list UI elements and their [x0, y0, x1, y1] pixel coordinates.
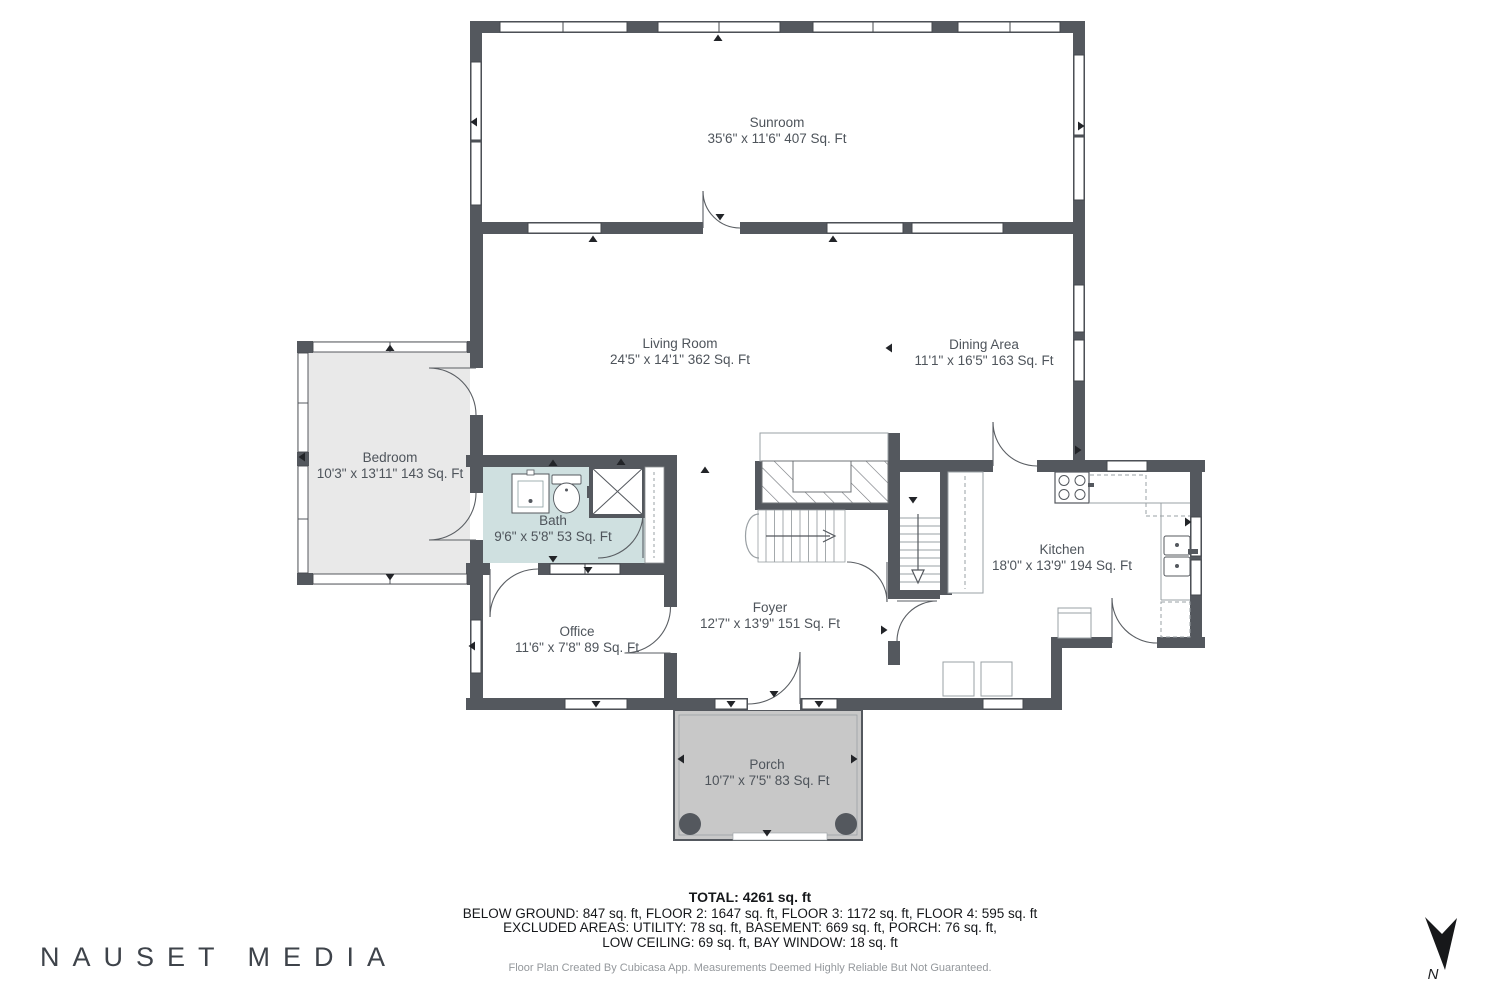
- room-name: Foyer: [700, 600, 840, 616]
- floor-areas: BELOW GROUND: 847 sq. ft, FLOOR 2: 1647 …: [0, 907, 1500, 922]
- room-dims: 9'6" x 5'8" 53 Sq. Ft: [494, 529, 612, 545]
- door-kitchen-south: [1112, 598, 1157, 643]
- room-label-office: Office 11'6" x 7'8" 89 Sq. Ft: [515, 624, 639, 656]
- door-mudroom: [897, 601, 937, 641]
- room-label-sunroom: Sunroom 35'6" x 11'6" 407 Sq. Ft: [707, 115, 846, 147]
- room-label-kitchen: Kitchen 18'0" x 13'9" 194 Sq. Ft: [992, 542, 1132, 574]
- porch-post: [835, 813, 857, 835]
- room-label-porch: Porch 10'7" x 7'5" 83 Sq. Ft: [704, 757, 829, 789]
- room-dims: 12'7" x 13'9" 151 Sq. Ft: [700, 616, 840, 632]
- room-name: Office: [515, 624, 639, 640]
- floor-plan-page: Sunroom 35'6" x 11'6" 407 Sq. Ft Living …: [0, 0, 1500, 1000]
- room-dims: 24'5" x 14'1" 362 Sq. Ft: [610, 352, 750, 368]
- north-label: N: [1418, 966, 1448, 983]
- brand-logo: NAUSET MEDIA: [40, 942, 398, 973]
- room-label-foyer: Foyer 12'7" x 13'9" 151 Sq. Ft: [700, 600, 840, 632]
- room-label-living-room: Living Room 24'5" x 14'1" 362 Sq. Ft: [610, 336, 750, 368]
- room-dims: 11'1" x 16'5" 163 Sq. Ft: [914, 353, 1053, 369]
- room-dims: 11'6" x 7'8" 89 Sq. Ft: [515, 640, 639, 656]
- stair-down-arrow: [912, 570, 924, 583]
- room-dims: 10'3" x 13'11" 143 Sq. Ft: [317, 466, 464, 482]
- door-dining-kitchen: [993, 422, 1037, 466]
- room-dims: 10'7" x 7'5" 83 Sq. Ft: [704, 773, 829, 789]
- room-name: Porch: [704, 757, 829, 773]
- door-stairs-foyer: [847, 562, 887, 602]
- room-dims: 35'6" x 11'6" 407 Sq. Ft: [707, 131, 846, 147]
- kitchen-fixtures: [943, 472, 1198, 696]
- room-name: Sunroom: [707, 115, 846, 131]
- room-label-dining-area: Dining Area 11'1" x 16'5" 163 Sq. Ft: [914, 337, 1053, 369]
- floor-plan-drawing: [0, 0, 1500, 1000]
- area-summary: TOTAL: 4261 sq. ft BELOW GROUND: 847 sq.…: [0, 890, 1500, 950]
- closet: [645, 467, 664, 563]
- porch-post: [679, 813, 701, 835]
- room-dims: 18'0" x 13'9" 194 Sq. Ft: [992, 558, 1132, 574]
- door-office-top: [490, 569, 538, 617]
- stair-railing: [746, 514, 760, 558]
- furniture: [981, 662, 1012, 696]
- room-name: Living Room: [610, 336, 750, 352]
- room-label-bath: Bath 9'6" x 5'8" 53 Sq. Ft: [494, 513, 612, 545]
- room-name: Dining Area: [914, 337, 1053, 353]
- room-name: Kitchen: [992, 542, 1132, 558]
- total-area: TOTAL: 4261 sq. ft: [0, 890, 1500, 905]
- room-name: Bath: [494, 513, 612, 529]
- toilet-bowl: [554, 483, 580, 513]
- faucet: [1188, 549, 1198, 554]
- excluded-areas: EXCLUDED AREAS: UTILITY: 78 sq. ft, BASE…: [0, 921, 1500, 936]
- furniture: [943, 662, 974, 696]
- room-label-bedroom: Bedroom 10'3" x 13'11" 143 Sq. Ft: [317, 450, 464, 482]
- room-name: Bedroom: [317, 450, 464, 466]
- north-arrow-icon: [1425, 917, 1457, 970]
